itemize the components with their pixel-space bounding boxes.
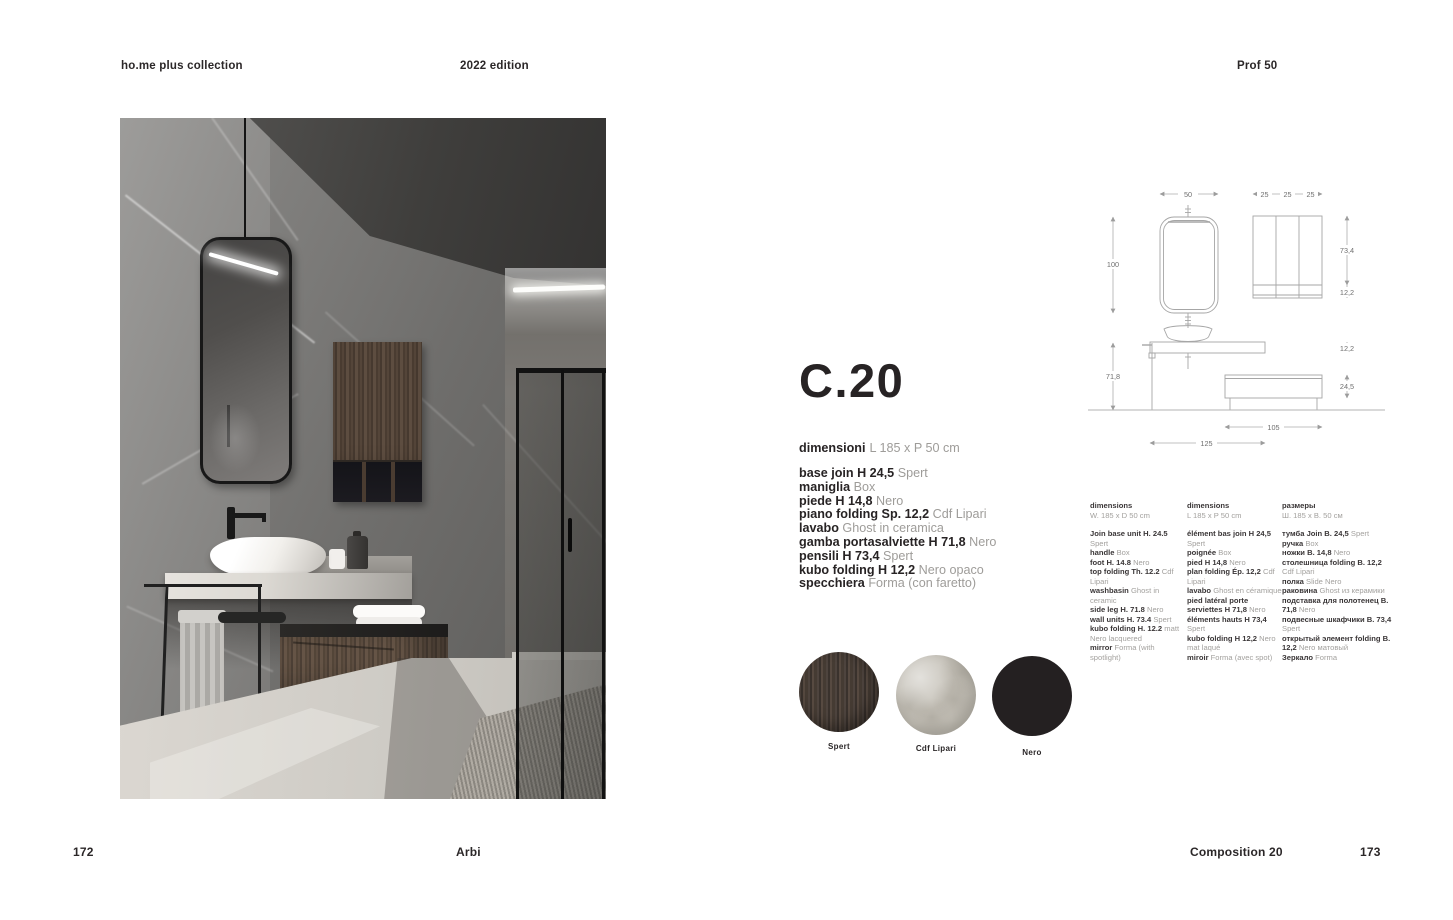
faucet-spout	[232, 513, 266, 518]
cabinet-shelf-divider	[362, 462, 366, 502]
mirror-reflection-glow	[209, 403, 261, 473]
column-item: washbasin Ghost in ceramic	[1090, 586, 1182, 605]
svg-text:50: 50	[1184, 190, 1192, 199]
column-item: lavabo Ghost en céramique	[1187, 586, 1283, 596]
mirror	[200, 237, 292, 484]
column-item: столешница folding В. 12,2 Cdf Lipari	[1282, 558, 1392, 577]
spec-row: base join H 24,5 Spert	[799, 467, 1039, 481]
column-item: kubo folding H. 12.2 matt Nero lacquered	[1090, 624, 1182, 643]
column-fr-header: dimensions	[1187, 501, 1283, 511]
dimensions-label: dimensioni	[799, 441, 865, 455]
column-item: miroir Forma (avec spot)	[1187, 653, 1283, 663]
spec-row: lavabo Ghost in ceramica	[799, 522, 1039, 536]
column-ru: размеры Ш. 185 х В. 50 см тумба Join В. …	[1282, 501, 1392, 662]
column-item: top folding Th. 12.2 Cdf Lipari	[1090, 567, 1182, 586]
spec-row: piano folding Sp. 12,2 Cdf Lipari	[799, 508, 1039, 522]
svg-text:73,4: 73,4	[1340, 246, 1354, 255]
base-unit-top	[280, 624, 448, 637]
swatch-circle-spert	[799, 652, 879, 732]
spec-list-it: base join H 24,5 Spertmaniglia Boxpiede …	[799, 467, 1039, 591]
drawer-groove	[293, 641, 394, 650]
brand-name: Arbi	[456, 845, 481, 859]
column-item: foot H. 14.8 Nero	[1090, 558, 1182, 568]
column-item: handle Box	[1090, 548, 1182, 558]
spec-row: kubo folding H 12,2 Nero opaco	[799, 564, 1039, 578]
column-item: side leg H. 71.8 Nero	[1090, 605, 1182, 615]
page-number-right: 173	[1360, 845, 1381, 859]
mirror-stem	[244, 118, 246, 240]
profile-label: Prof 50	[1237, 60, 1277, 72]
column-fr-size: L 185 x P 50 cm	[1187, 511, 1283, 521]
cabinet-open-shelves	[333, 460, 422, 502]
canister	[347, 536, 368, 569]
column-item: kubo folding H 12,2 Nero mat laqué	[1187, 634, 1283, 653]
finish-swatch-cdf-lipari: Cdf Lipari	[896, 655, 976, 753]
cabinet-shelf-divider	[391, 462, 395, 502]
column-fr: dimensions L 185 x P 50 cm élément bas j…	[1187, 501, 1283, 662]
column-item: подвесные шкафчики В. 73,4 Spert	[1282, 615, 1392, 634]
column-ru-header: размеры	[1282, 501, 1392, 511]
column-fr-items: élément bas join H 24,5 Spertpoignée Box…	[1187, 529, 1283, 662]
column-item: pied H 14,8 Nero	[1187, 558, 1283, 568]
shower-frame-right	[602, 368, 605, 799]
svg-text:100: 100	[1107, 260, 1119, 269]
svg-text:12,2: 12,2	[1340, 288, 1354, 297]
swatch-label: Spert	[799, 742, 879, 751]
spec-row: gamba portasalviette H 71,8 Nero	[799, 536, 1039, 550]
svg-text:71,8: 71,8	[1106, 372, 1120, 381]
finish-swatch-spert: Spert	[799, 652, 879, 751]
shower-frame-left	[516, 368, 519, 799]
shower-door-edge	[561, 370, 564, 799]
faucet-body	[227, 507, 235, 539]
spec-row: piede H 14,8 Nero	[799, 495, 1039, 509]
column-item: élément bas join H 24,5 Spert	[1187, 529, 1283, 548]
column-ru-items: тумба Join В. 24,5 Spertручка Boxножки В…	[1282, 529, 1392, 662]
washbasin	[210, 537, 326, 576]
column-item: pied latéral porte serviettes H 71,8 Ner…	[1187, 596, 1283, 615]
faucet-tip	[262, 513, 266, 522]
spec-row: pensili H 73,4 Spert	[799, 550, 1039, 564]
collection-title: ho.me plus collection	[121, 60, 243, 72]
bathroom-photo	[120, 118, 606, 799]
column-item: poignée Box	[1187, 548, 1283, 558]
swatch-circle-nero	[992, 656, 1072, 736]
column-item: ножки В. 14,8 Nero	[1282, 548, 1392, 558]
column-item: Join base unit H. 24.5 Spert	[1090, 529, 1182, 548]
column-item: ручка Box	[1282, 539, 1392, 549]
column-item: wall units H. 73.4 Spert	[1090, 615, 1182, 625]
spec-row: maniglia Box	[799, 481, 1039, 495]
svg-text:25: 25	[1260, 190, 1268, 199]
page-number-left: 172	[73, 845, 94, 859]
mirror-led-light	[208, 252, 278, 276]
technical-drawing: 50 25 25 25 100 71,8 73,4 12,2 12,2 24,5…	[1088, 185, 1388, 453]
swatch-label: Nero	[992, 748, 1072, 757]
column-item: Зеркало Forma	[1282, 653, 1392, 663]
composition-code: C.20	[799, 353, 904, 408]
column-en-header: dimensions	[1090, 501, 1182, 511]
column-item: plan folding Ép. 12,2 Cdf Lipari	[1187, 567, 1283, 586]
cup	[329, 549, 345, 569]
column-item: éléments hauts H 73,4 Spert	[1187, 615, 1283, 634]
towel-stand-top-bar	[144, 584, 262, 587]
shower-handle	[568, 518, 572, 552]
cove-light-glow	[505, 268, 606, 363]
column-item: mirror Forma (with spotlight)	[1090, 643, 1182, 662]
column-item: подставка для полотенец В. 71,8 Nero	[1282, 596, 1392, 615]
drawing-structure	[1088, 205, 1385, 410]
column-en-items: Join base unit H. 24.5 Sperthandle Boxfo…	[1090, 529, 1182, 662]
svg-text:125: 125	[1200, 439, 1212, 448]
svg-text:12,2: 12,2	[1340, 344, 1354, 353]
dimensions-value: L 185 x P 50 cm	[869, 441, 959, 455]
wall-cabinet	[333, 342, 422, 502]
column-item: раковина Ghost из керамики	[1282, 586, 1392, 596]
svg-text:105: 105	[1267, 423, 1279, 432]
spec-row: specchiera Forma (con faretto)	[799, 577, 1039, 591]
svg-text:25: 25	[1283, 190, 1291, 199]
svg-text:24,5: 24,5	[1340, 382, 1354, 391]
swatch-circle-cdf-lipari	[896, 655, 976, 735]
column-ru-size: Ш. 185 х В. 50 см	[1282, 511, 1392, 521]
svg-text:25: 25	[1306, 190, 1314, 199]
column-item: открытый элемент folding В. 12,2 Nero ма…	[1282, 634, 1392, 653]
catalog-spread: ho.me plus collection 2022 edition Prof …	[0, 0, 1453, 920]
column-en: dimensions W. 185 x D 50 cm Join base un…	[1090, 501, 1182, 662]
finish-swatch-nero: Nero	[992, 656, 1072, 757]
composition-name: Composition 20	[1190, 845, 1283, 859]
column-en-size: W. 185 x D 50 cm	[1090, 511, 1182, 521]
swatch-label: Cdf Lipari	[896, 744, 976, 753]
towel-bar	[218, 612, 286, 623]
column-item: тумба Join В. 24,5 Spert	[1282, 529, 1392, 539]
column-item: полка Slide Nero	[1282, 577, 1392, 587]
dimensions-line: dimensioniL 185 x P 50 cm	[799, 441, 960, 455]
edition-title: 2022 edition	[460, 60, 529, 72]
